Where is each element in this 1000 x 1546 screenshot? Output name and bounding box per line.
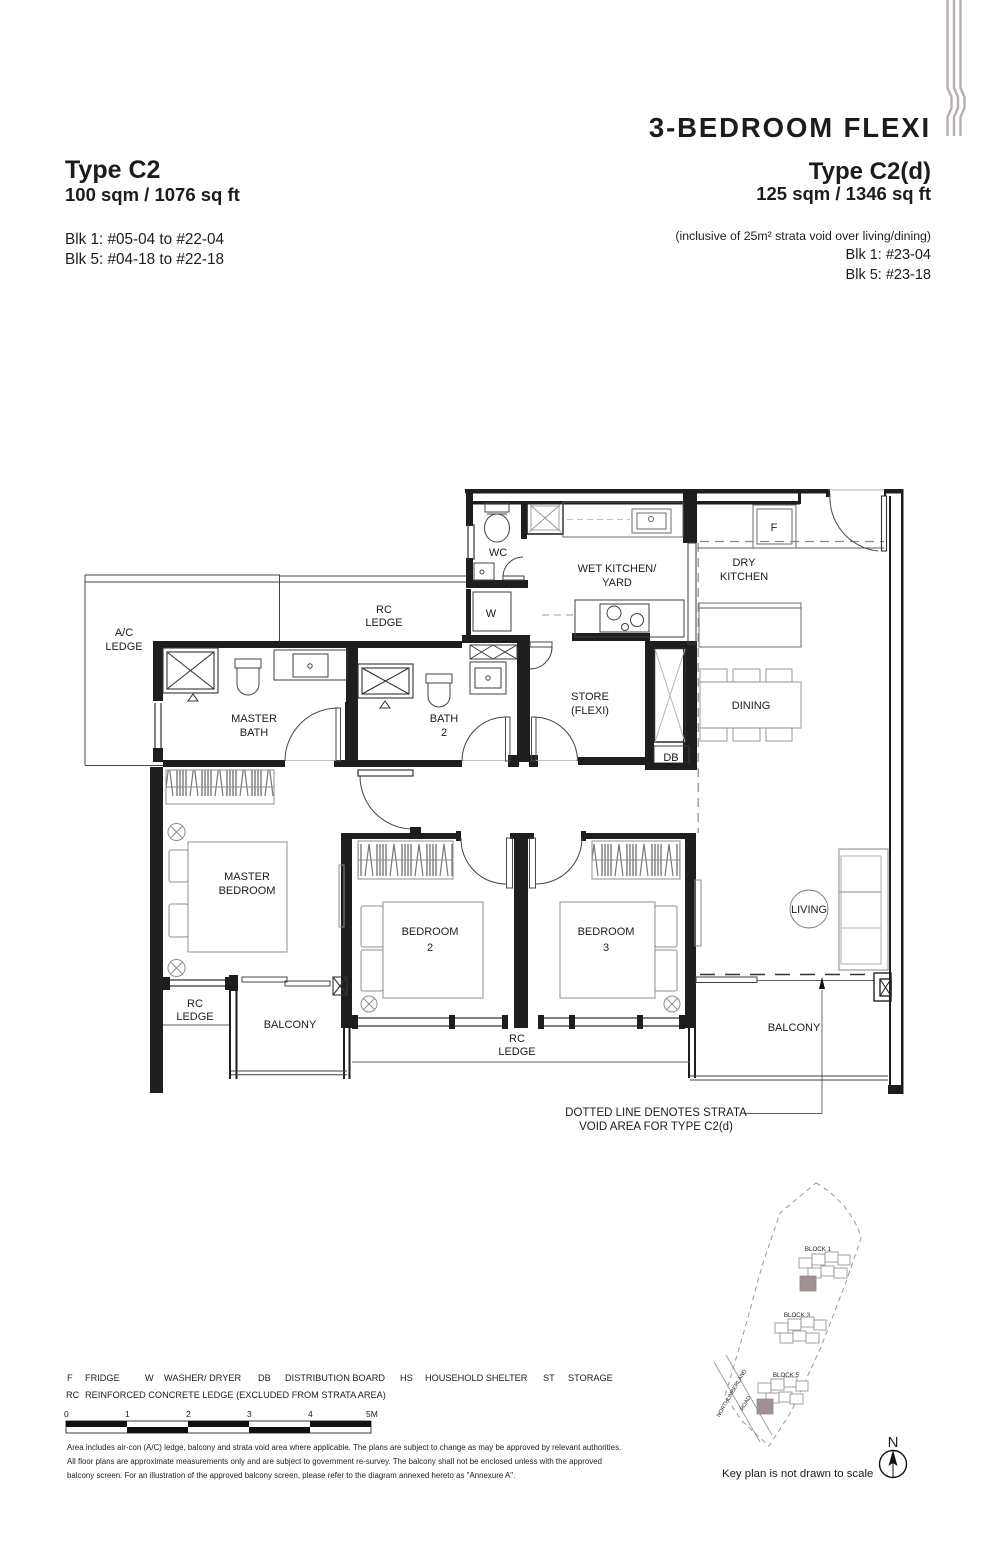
svg-text:LEDGE: LEDGE <box>365 617 402 629</box>
svg-text:DISTRIBUTION BOARD: DISTRIBUTION BOARD <box>285 1373 385 1383</box>
svg-text:RC: RC <box>509 1033 525 1045</box>
svg-text:Key plan is not drawn to scale: Key plan is not drawn to scale <box>722 1468 873 1480</box>
svg-text:DRY: DRY <box>732 557 756 569</box>
svg-text:W: W <box>486 608 497 620</box>
svg-text:STORE: STORE <box>571 691 609 703</box>
svg-text:WASHER/ DRYER: WASHER/ DRYER <box>164 1373 241 1383</box>
svg-text:Type C2: Type C2 <box>65 156 160 184</box>
svg-text:RC: RC <box>376 604 392 616</box>
svg-text:HOUSEHOLD SHELTER: HOUSEHOLD SHELTER <box>425 1373 528 1383</box>
svg-text:BEDROOM: BEDROOM <box>219 885 276 897</box>
svg-text:BEDROOM: BEDROOM <box>402 926 459 938</box>
svg-text:FRIDGE: FRIDGE <box>85 1373 120 1383</box>
svg-text:balcony screen. For an illustr: balcony screen. For an illustration of t… <box>67 1471 515 1480</box>
svg-text:LEDGE: LEDGE <box>176 1011 213 1023</box>
svg-text:DB: DB <box>663 752 678 764</box>
svg-text:3-BEDROOM FLEXI: 3-BEDROOM FLEXI <box>649 112 931 143</box>
svg-text:LEDGE: LEDGE <box>498 1046 535 1058</box>
svg-text:WC: WC <box>489 547 507 559</box>
svg-text:N: N <box>888 1434 899 1451</box>
svg-text:BEDROOM: BEDROOM <box>578 926 635 938</box>
svg-text:RC: RC <box>187 998 203 1010</box>
svg-text:RC: RC <box>66 1390 80 1400</box>
svg-text:STORAGE: STORAGE <box>568 1373 613 1383</box>
svg-text:W: W <box>145 1373 154 1383</box>
svg-text:0: 0 <box>64 1409 69 1419</box>
svg-text:(inclusive of 25m² strata void: (inclusive of 25m² strata void over livi… <box>675 229 931 243</box>
svg-text:Blk 5: #04-18 to #22-18: Blk 5: #04-18 to #22-18 <box>65 251 224 268</box>
svg-text:125 sqm / 1346 sq ft: 125 sqm / 1346 sq ft <box>756 183 931 204</box>
svg-text:Blk 5: #23-18: Blk 5: #23-18 <box>846 267 931 283</box>
svg-text:YARD: YARD <box>602 577 632 589</box>
svg-text:ST: ST <box>543 1373 555 1383</box>
svg-text:2: 2 <box>441 727 447 739</box>
svg-text:3: 3 <box>603 942 609 954</box>
svg-text:HS: HS <box>400 1373 413 1383</box>
svg-text:DINING: DINING <box>732 700 771 712</box>
svg-text:VOID AREA FOR TYPE C2(d): VOID AREA FOR TYPE C2(d) <box>579 1121 733 1133</box>
svg-text:BALCONY: BALCONY <box>768 1022 821 1034</box>
svg-text:2: 2 <box>186 1409 191 1419</box>
svg-text:3: 3 <box>247 1409 252 1419</box>
svg-text:BALCONY: BALCONY <box>264 1019 317 1031</box>
svg-text:5M: 5M <box>366 1409 378 1419</box>
svg-text:1: 1 <box>125 1409 130 1419</box>
svg-text:MASTER: MASTER <box>224 871 270 883</box>
svg-text:Blk 1: #23-04: Blk 1: #23-04 <box>846 247 931 263</box>
svg-text:LEDGE: LEDGE <box>105 641 142 653</box>
svg-text:(FLEXI): (FLEXI) <box>571 705 609 717</box>
svg-text:KITCHEN: KITCHEN <box>720 571 768 583</box>
svg-text:DB: DB <box>258 1373 271 1383</box>
svg-text:BATH: BATH <box>240 727 269 739</box>
svg-text:REINFORCED CONCRETE LEDGE (EXC: REINFORCED CONCRETE LEDGE (EXCLUDED FROM… <box>85 1390 386 1400</box>
svg-text:DOTTED LINE DENOTES STRATA: DOTTED LINE DENOTES STRATA <box>565 1107 747 1119</box>
svg-text:MASTER: MASTER <box>231 713 277 725</box>
svg-text:A/C: A/C <box>115 627 133 639</box>
svg-text:100 sqm / 1076 sq ft: 100 sqm / 1076 sq ft <box>65 184 240 205</box>
svg-text:LIVING: LIVING <box>791 904 827 916</box>
svg-text:Blk 1: #05-04 to #22-04: Blk 1: #05-04 to #22-04 <box>65 231 225 248</box>
svg-text:Area includes air-con (A/C) le: Area includes air-con (A/C) ledge, balco… <box>67 1443 621 1452</box>
svg-text:All floor plans are approximat: All floor plans are approximate measurem… <box>67 1457 602 1466</box>
svg-text:F: F <box>67 1373 73 1383</box>
svg-text:Type C2(d): Type C2(d) <box>809 158 931 185</box>
svg-text:WET KITCHEN/: WET KITCHEN/ <box>578 563 658 575</box>
svg-text:2: 2 <box>427 942 433 954</box>
svg-text:4: 4 <box>308 1409 313 1419</box>
svg-text:ROAD: ROAD <box>740 1395 753 1412</box>
svg-text:F: F <box>771 522 778 534</box>
svg-text:BATH: BATH <box>430 713 459 725</box>
